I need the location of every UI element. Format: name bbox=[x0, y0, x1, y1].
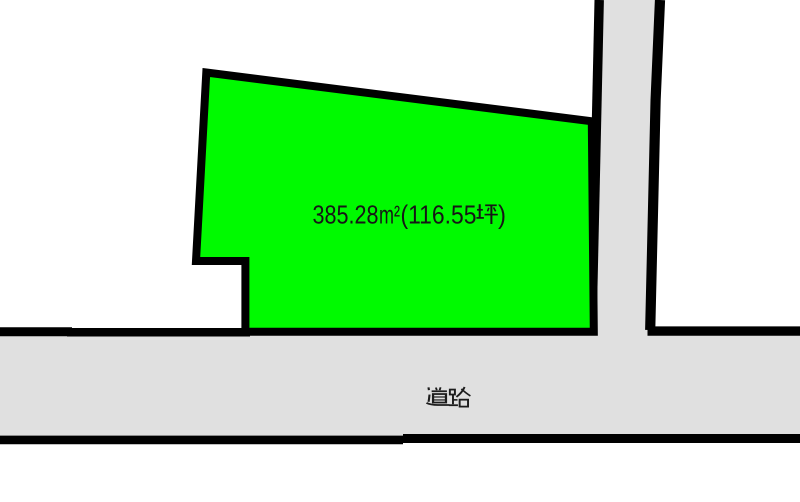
svg-text:385.28: 385.28 bbox=[313, 200, 379, 230]
svg-text:m²: m² bbox=[379, 200, 400, 230]
svg-text:(116.55: (116.55 bbox=[401, 200, 477, 230]
svg-text:): ) bbox=[498, 200, 506, 230]
